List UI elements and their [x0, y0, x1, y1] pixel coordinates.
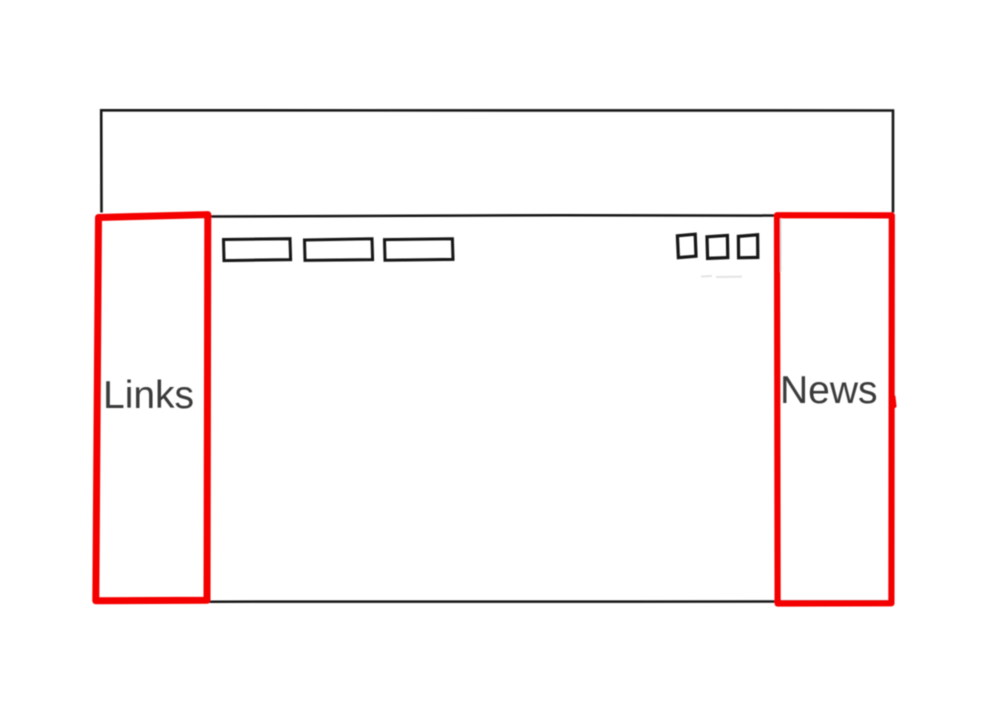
svg-text:News: News: [780, 369, 878, 412]
svg-text:Links: Links: [103, 374, 194, 417]
